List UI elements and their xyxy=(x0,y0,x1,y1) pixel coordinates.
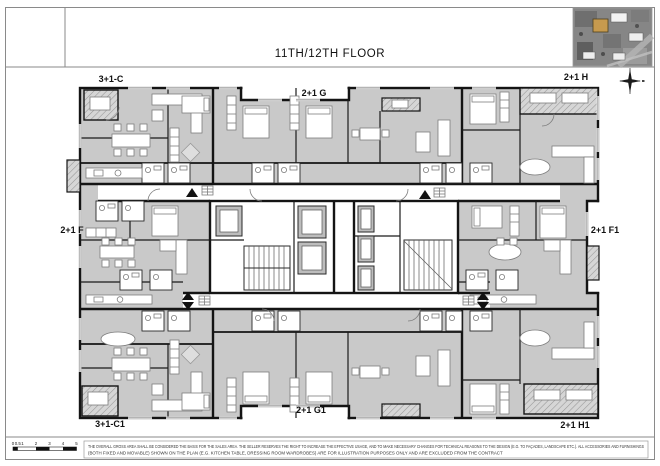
indicator-panel xyxy=(463,296,474,305)
corridor-bottom xyxy=(183,294,490,310)
indicator-panel xyxy=(202,186,213,195)
disclaimer-text-line1: THE OVERALL GROSS AREA SHALL BE CONSIDER… xyxy=(88,444,644,449)
floor-plan-sheet: 11TH/12TH FLOOR xyxy=(0,0,660,466)
unit-label-2plus1-h1: 2+1 H1 xyxy=(560,420,589,430)
staircase xyxy=(244,246,290,290)
scale-tick-label: 1 xyxy=(21,441,24,446)
balcony-right xyxy=(587,246,599,280)
site-map-thumbnail xyxy=(573,8,652,66)
unit-label-2plus1-g1: 2+1 G1 xyxy=(296,405,326,415)
indicator-panel xyxy=(199,296,210,305)
page-title: 11TH/12TH FLOOR xyxy=(275,48,385,60)
disclaimer-text-line2: (BOTH FIXED AND MOVABLE) SHOWN ON THE PL… xyxy=(88,451,503,456)
corridor-top xyxy=(98,185,560,201)
scale-tick-label: 4 xyxy=(62,441,65,446)
unit-label-2plus1-f1: 2+1 F1 xyxy=(591,225,619,235)
indicator-panel xyxy=(434,188,445,197)
unit-label-2plus1-h: 2+1 H xyxy=(564,72,588,82)
unit-label-2plus1-g: 2+1 G xyxy=(302,88,327,98)
building-mass xyxy=(80,85,600,421)
scale-tick-label: 3 xyxy=(48,441,51,446)
unit-label-3plus1-c1: 3+1-C1 xyxy=(95,419,125,429)
balcony-left xyxy=(67,160,80,192)
staircase xyxy=(404,240,452,290)
highlighted-building xyxy=(593,19,608,32)
scale-bar: 0 0.5 1 2 3 4 5 xyxy=(12,441,79,451)
floor-plan-drawing: 11TH/12TH FLOOR xyxy=(0,0,660,466)
scale-tick-label: 2 xyxy=(35,441,38,446)
unit-label-3plus1-c: 3+1-C xyxy=(99,74,124,84)
balcony-bottom-center xyxy=(382,404,420,417)
north-arrow-icon xyxy=(619,68,645,94)
scale-tick-label: 5 xyxy=(75,441,78,446)
unit-label-2plus1-f: 2+1 F xyxy=(60,225,84,235)
disclaimer-box: THE OVERALL GROSS AREA SHALL BE CONSIDER… xyxy=(84,441,648,458)
